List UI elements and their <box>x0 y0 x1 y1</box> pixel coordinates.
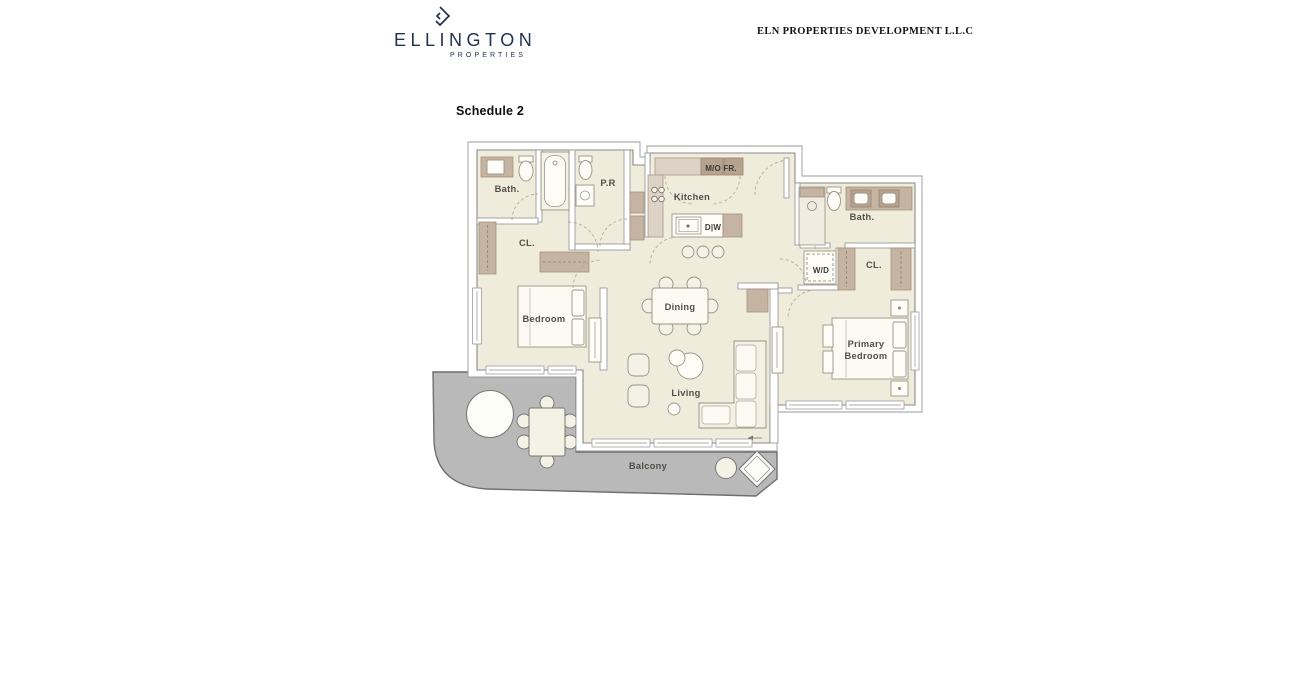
document-page: ELLINGTON PROPERTIES ELN PROPERTIES DEVE… <box>0 0 1298 699</box>
label-primary-line2: Bedroom <box>845 351 888 361</box>
pillow <box>893 351 906 377</box>
toilet <box>828 192 841 211</box>
label-dishwasher: D|W <box>705 223 721 232</box>
label-kitchen: Kitchen <box>674 192 710 202</box>
label-microwave-fridge: M/O FR. <box>705 164 737 173</box>
toilet <box>579 161 592 180</box>
bar-stools <box>682 246 724 258</box>
label-washer-dryer: W/D <box>813 266 829 275</box>
balcony-round-table <box>467 391 514 438</box>
floor-plan: Bath. P.R Kitchen M/O FR. D|W CL. Bedroo… <box>425 135 945 510</box>
toilet <box>519 161 533 181</box>
sink <box>882 193 896 204</box>
label-balcony: Balcony <box>629 461 668 471</box>
company-name: ELN PROPERTIES DEVELOPMENT L.L.C <box>757 26 973 37</box>
logo-wordmark: ELLINGTON <box>394 30 536 51</box>
label-dining: Dining <box>665 302 696 312</box>
label-closet-left: CL. <box>519 238 535 248</box>
entry-door-leaf <box>784 158 789 198</box>
pillow <box>572 290 584 316</box>
sink <box>487 160 504 174</box>
label-bath-top: Bath. <box>495 184 520 194</box>
bench <box>823 325 833 347</box>
label-living: Living <box>671 388 700 398</box>
schedule-title: Schedule 2 <box>456 104 524 118</box>
label-bath-right: Bath. <box>850 212 875 222</box>
label-powder-room: P.R <box>600 178 615 188</box>
armchair <box>628 385 649 407</box>
armchair <box>628 354 649 376</box>
bench <box>823 351 833 373</box>
ellington-logo-icon <box>428 6 452 30</box>
pillow <box>893 322 906 348</box>
label-bedroom: Bedroom <box>523 314 566 324</box>
logo-subtitle: PROPERTIES <box>450 52 526 59</box>
sink <box>854 193 868 204</box>
balcony-side-table <box>716 458 737 479</box>
label-closet-right: CL. <box>866 260 882 270</box>
tv-console <box>772 327 783 373</box>
label-primary-line1: Primary <box>848 339 885 349</box>
side-table <box>668 403 680 415</box>
pillow <box>572 319 584 345</box>
